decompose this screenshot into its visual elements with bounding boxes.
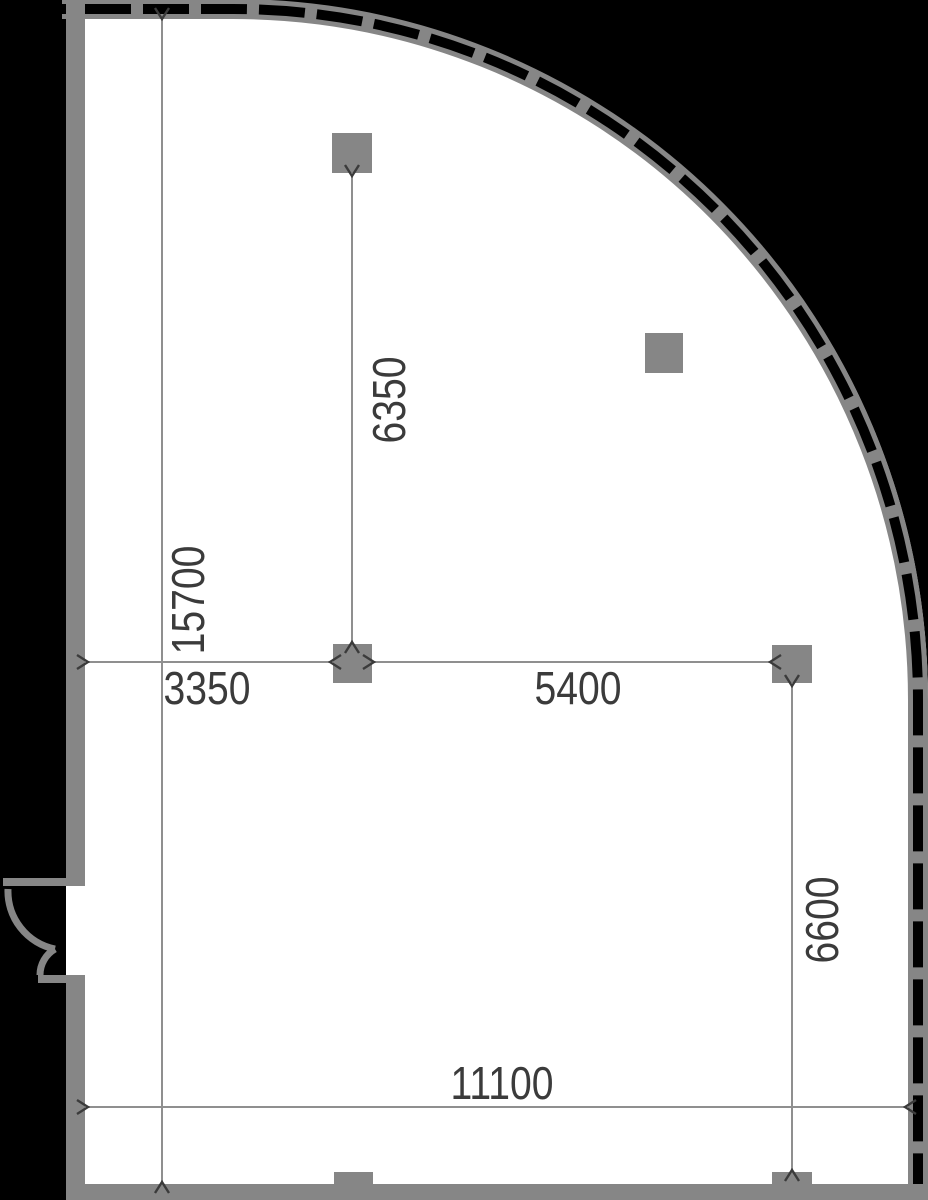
dim-label-wall-to-column: 3350 bbox=[164, 665, 251, 711]
left-wall-lower bbox=[66, 983, 85, 1200]
pilaster-bottom-right bbox=[772, 1172, 812, 1184]
floor-plan-canvas: 15700 6350 3350 5400 6600 11100 bbox=[0, 0, 928, 1200]
dim-label-left-overall: 15700 bbox=[165, 546, 211, 655]
door-swing-arc-large bbox=[8, 889, 55, 949]
door-top-leaf bbox=[3, 878, 85, 886]
column-mid-left bbox=[333, 644, 372, 683]
dim-label-top-column-span: 6350 bbox=[366, 357, 412, 444]
column-top bbox=[332, 133, 372, 173]
door-swing-arc-small bbox=[40, 949, 55, 975]
dim-label-bottom-overall: 11100 bbox=[451, 1060, 554, 1106]
door-bottom-leaf bbox=[38, 975, 85, 983]
dim-label-column-to-column: 5400 bbox=[535, 665, 622, 711]
column-upper-right bbox=[645, 333, 683, 373]
dim-label-column-to-bottom: 6600 bbox=[799, 877, 845, 964]
bottom-wall bbox=[66, 1184, 928, 1200]
floor-plan-drawing bbox=[0, 0, 928, 1200]
column-mid-right bbox=[772, 645, 812, 683]
left-wall-upper bbox=[66, 0, 85, 878]
pilaster-bottom-left bbox=[334, 1172, 373, 1184]
